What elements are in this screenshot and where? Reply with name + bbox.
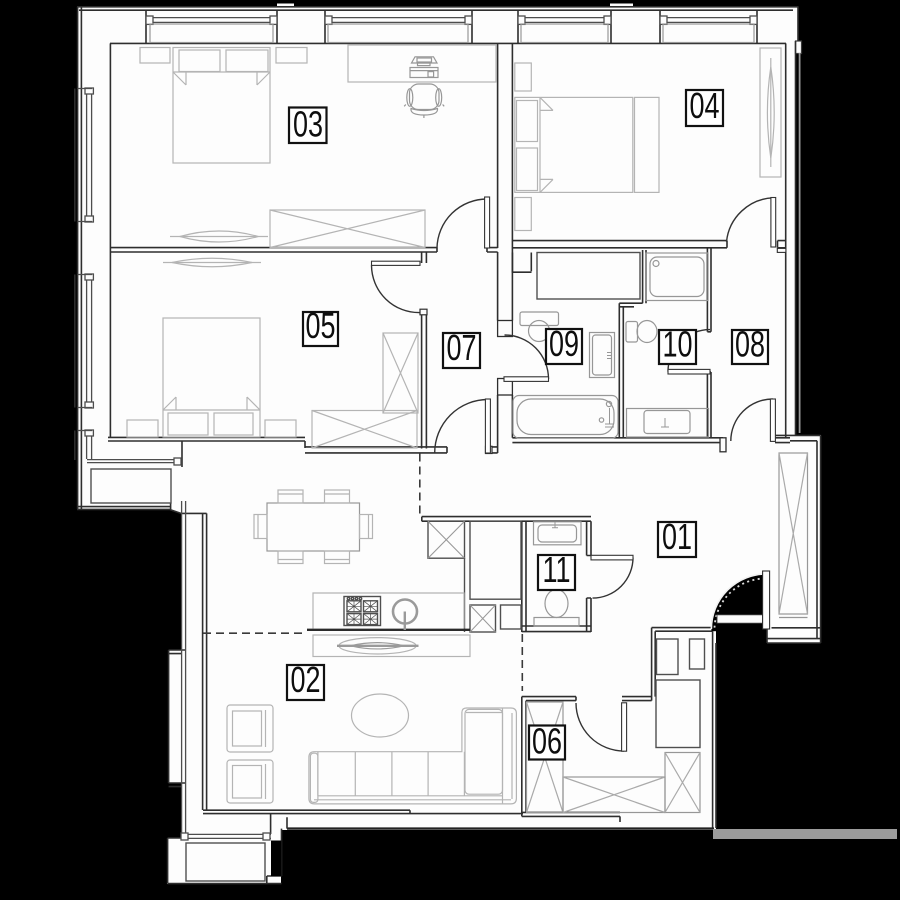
svg-text:09: 09 xyxy=(549,323,579,364)
svg-text:11: 11 xyxy=(542,549,570,590)
svg-text:03: 03 xyxy=(293,104,323,145)
svg-text:10: 10 xyxy=(662,324,692,365)
svg-text:04: 04 xyxy=(689,85,719,126)
svg-text:06: 06 xyxy=(532,721,562,762)
svg-text:05: 05 xyxy=(305,305,335,346)
svg-text:01: 01 xyxy=(662,516,692,557)
svg-text:02: 02 xyxy=(290,659,320,700)
svg-text:08: 08 xyxy=(735,324,765,365)
svg-text:07: 07 xyxy=(446,327,476,368)
